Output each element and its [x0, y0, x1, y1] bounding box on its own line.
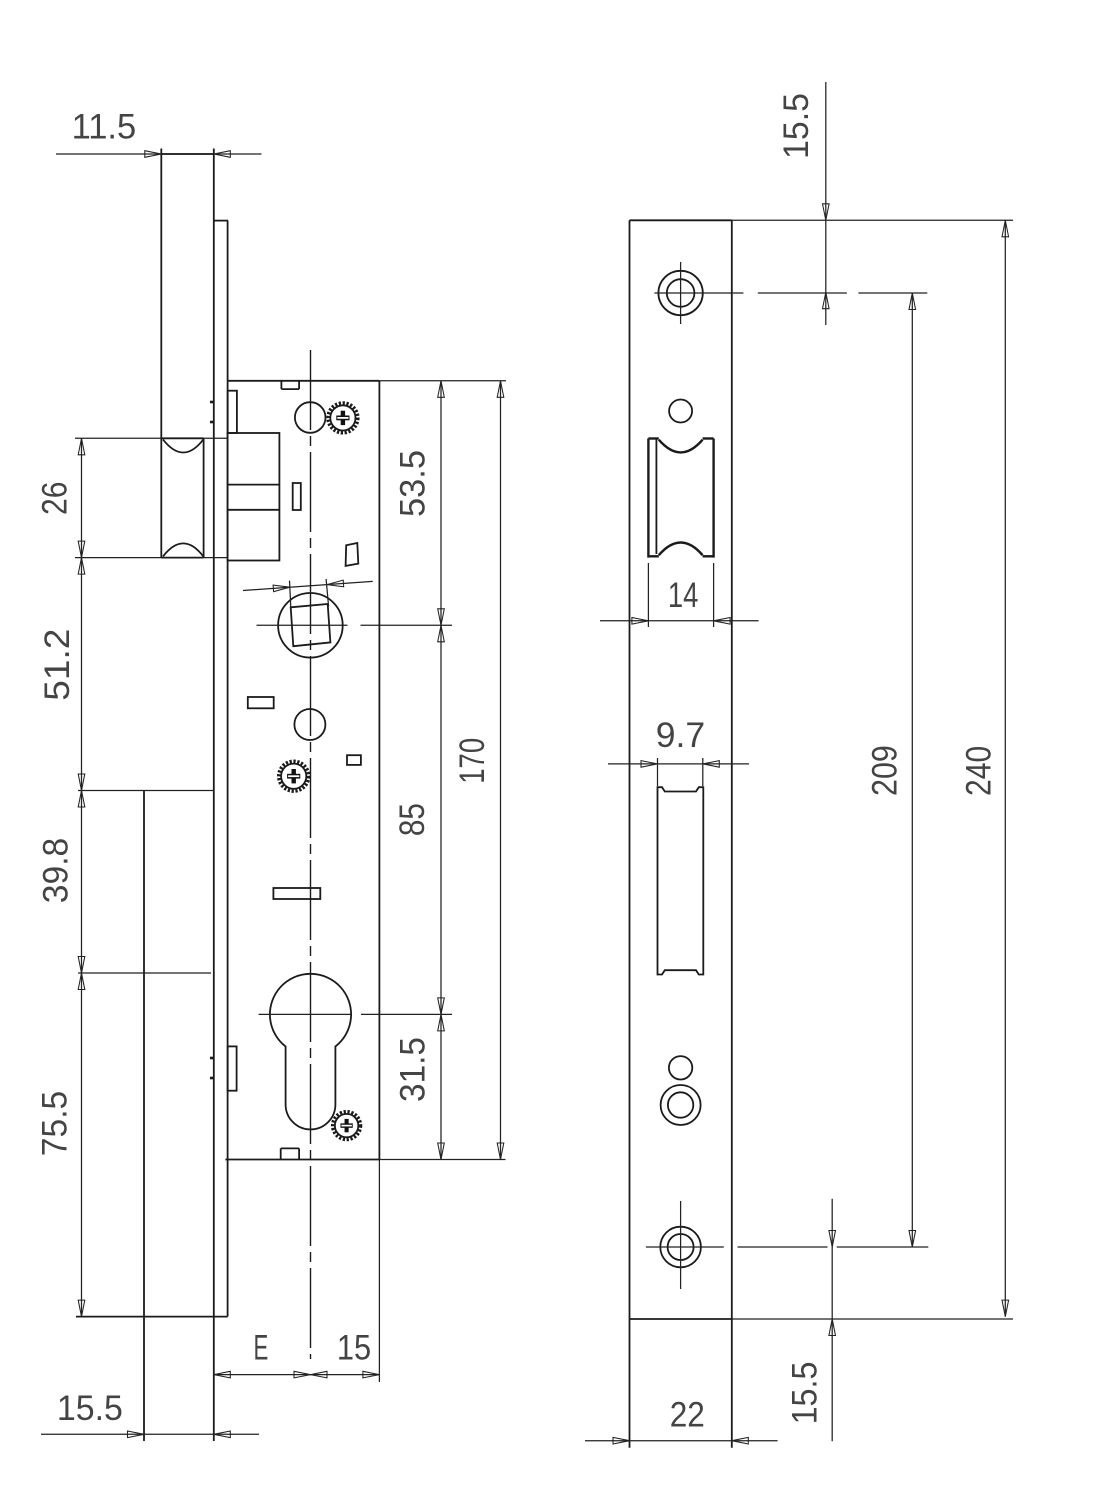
- svg-text:85: 85: [392, 803, 432, 836]
- svg-text:26: 26: [35, 481, 75, 515]
- svg-text:9.7: 9.7: [656, 715, 705, 755]
- svg-text:31.5: 31.5: [393, 1037, 433, 1102]
- svg-text:240: 240: [959, 746, 999, 796]
- svg-text:11.5: 11.5: [72, 106, 137, 146]
- svg-text:75.5: 75.5: [34, 1091, 74, 1156]
- svg-text:15.5: 15.5: [776, 93, 816, 159]
- svg-text:14: 14: [668, 575, 699, 615]
- svg-text:51.2: 51.2: [37, 629, 77, 701]
- svg-text:39.8: 39.8: [35, 838, 75, 903]
- svg-text:209: 209: [864, 745, 904, 796]
- svg-text:E: E: [254, 1327, 269, 1367]
- svg-text:15: 15: [337, 1327, 371, 1367]
- svg-text:53.5: 53.5: [393, 450, 433, 517]
- svg-text:170: 170: [452, 738, 492, 784]
- svg-text:15.5: 15.5: [784, 1362, 824, 1425]
- svg-text:15.5: 15.5: [57, 1388, 123, 1428]
- svg-text:22: 22: [670, 1395, 705, 1435]
